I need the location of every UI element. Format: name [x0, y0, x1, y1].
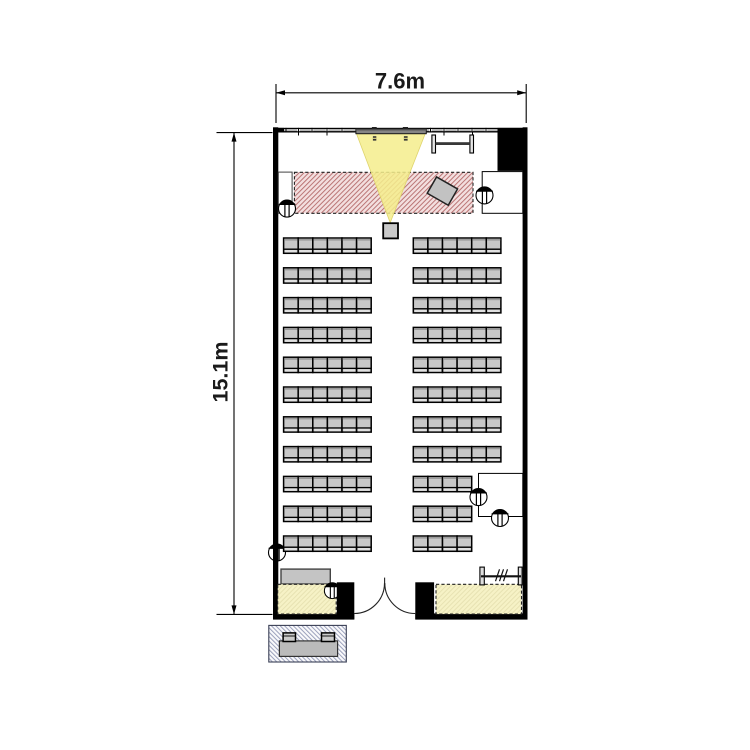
svg-text:15.1m: 15.1m — [209, 342, 233, 403]
svg-text:7.6m: 7.6m — [375, 69, 425, 94]
